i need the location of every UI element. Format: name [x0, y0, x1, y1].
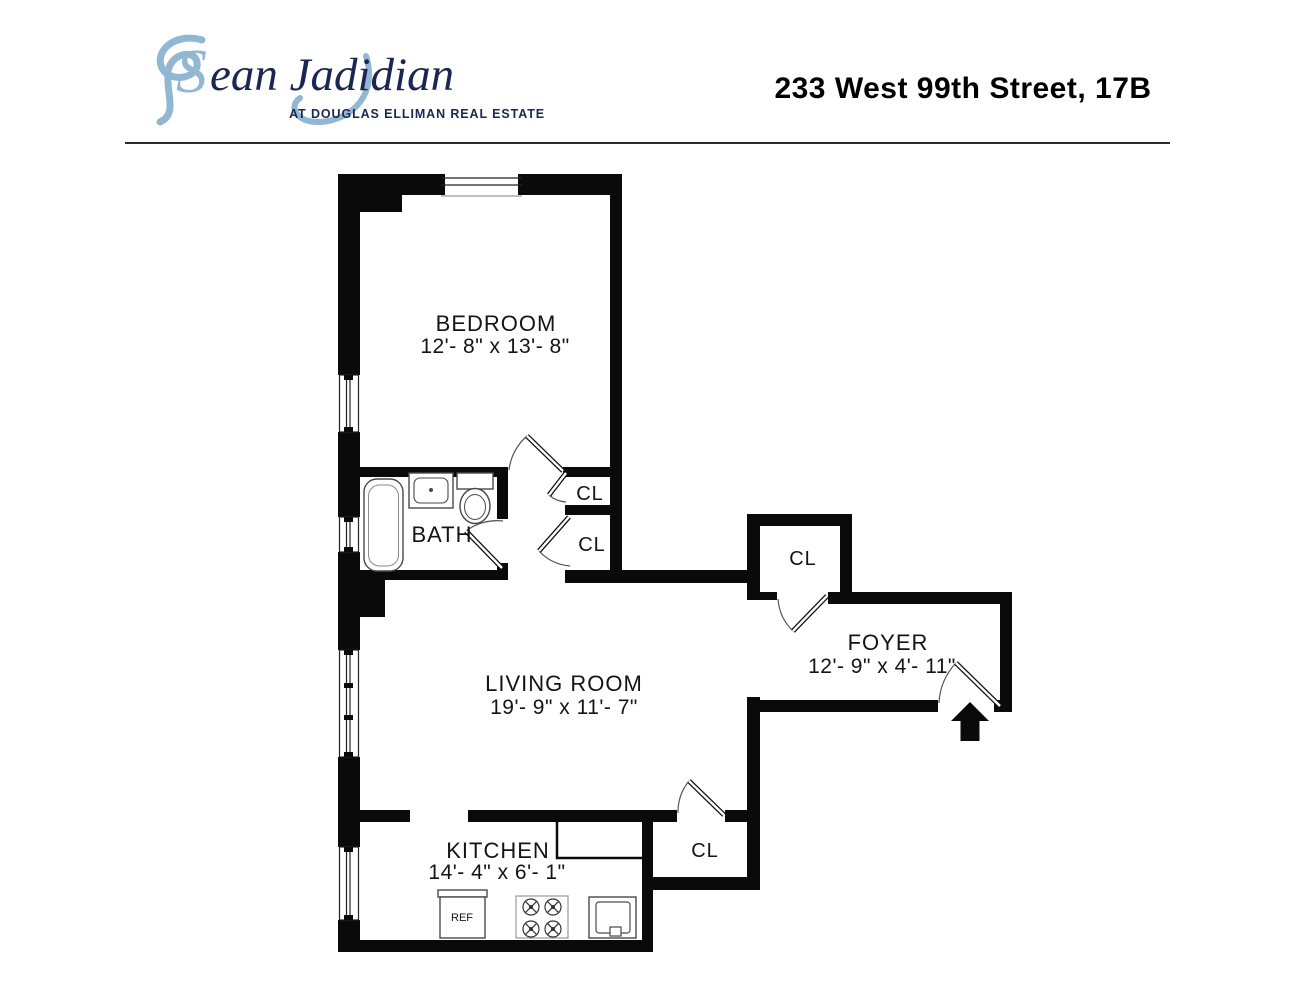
hall-closet-door-upper	[549, 473, 566, 502]
bedroom-label: BEDROOM	[436, 311, 557, 336]
toilet-icon	[457, 473, 493, 524]
kitchen-closet-door	[678, 781, 724, 815]
hall-closet-upper-label: CL	[576, 483, 604, 505]
floorplan-drawing: REF BEDROOM 12'- 8" x 13'- 8"	[0, 0, 1294, 1000]
refrigerator-label: REF	[451, 912, 473, 924]
kitchen-counter-line	[557, 822, 645, 858]
bedroom-dimensions: 12'- 8" x 13'- 8"	[420, 335, 569, 358]
kitchen-closet-label: CL	[691, 840, 719, 862]
foyer-label: FOYER	[848, 630, 929, 655]
kitchen-dimensions: 14'- 4" x 6'- 1"	[428, 861, 565, 884]
kitchen-window	[338, 847, 360, 920]
living-room-dimensions: 19'- 9" x 11'- 7"	[490, 696, 638, 719]
kitchen-label: KITCHEN	[446, 838, 550, 863]
foyer-closet-door	[778, 596, 827, 631]
refrigerator-icon: REF	[438, 890, 487, 938]
walls	[338, 174, 1012, 952]
stove-icon	[516, 896, 568, 938]
bedroom-left-window	[338, 375, 360, 432]
hall-closet-lower-label: CL	[578, 534, 606, 556]
bath-label: BATH	[411, 522, 472, 547]
living-room-label: LIVING ROOM	[485, 671, 643, 696]
foyer-dimensions: 12'- 9" x 4'- 11"	[808, 655, 956, 678]
hall-closet-door-lower	[539, 517, 570, 566]
bedroom-top-window	[441, 172, 522, 196]
living-room-window	[338, 650, 360, 757]
bedroom-door	[509, 436, 563, 471]
floorplan-page: S ean Jadidian AT DOUGLAS ELLIMAN REAL E…	[0, 0, 1294, 1000]
kitchen-sink-icon	[589, 897, 636, 938]
entry-arrow-icon	[951, 702, 989, 741]
bathtub-icon	[364, 479, 403, 571]
bath-window	[338, 517, 360, 552]
bathroom-sink-icon	[409, 473, 453, 508]
foyer-closet-label: CL	[789, 548, 817, 570]
